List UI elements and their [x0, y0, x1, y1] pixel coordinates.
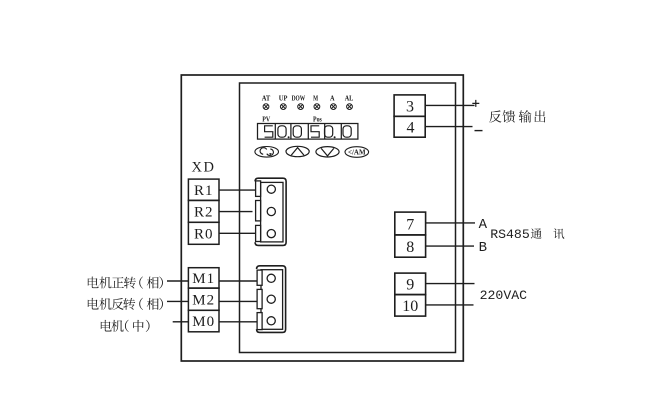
svg-text:RS485: RS485 [490, 227, 530, 242]
svg-text:3: 3 [406, 99, 414, 116]
svg-text:10: 10 [402, 298, 418, 315]
svg-text:</AM: </AM [348, 148, 366, 156]
svg-text:R0: R0 [194, 227, 214, 243]
svg-text:4: 4 [407, 120, 415, 137]
svg-text:M0: M0 [192, 314, 215, 330]
svg-text:A: A [479, 217, 488, 233]
svg-text:8: 8 [406, 239, 414, 256]
svg-text:DOW: DOW [292, 94, 306, 103]
svg-text:M: M [313, 94, 318, 103]
svg-text:M2: M2 [192, 292, 215, 308]
svg-text:PV: PV [262, 114, 270, 123]
svg-text:7: 7 [406, 216, 414, 233]
svg-text:R1: R1 [194, 183, 214, 199]
svg-text:XD: XD [192, 159, 216, 175]
svg-text:9: 9 [406, 276, 414, 293]
svg-text:AL: AL [345, 94, 354, 103]
svg-text:UP: UP [279, 94, 288, 103]
svg-text:220VAC: 220VAC [480, 288, 528, 303]
svg-text:R2: R2 [194, 205, 214, 221]
svg-text:A: A [330, 94, 335, 103]
svg-text:B: B [479, 240, 487, 256]
svg-text:M1: M1 [192, 271, 215, 287]
svg-text:AT: AT [262, 94, 271, 103]
svg-text:Pos: Pos [313, 114, 322, 123]
